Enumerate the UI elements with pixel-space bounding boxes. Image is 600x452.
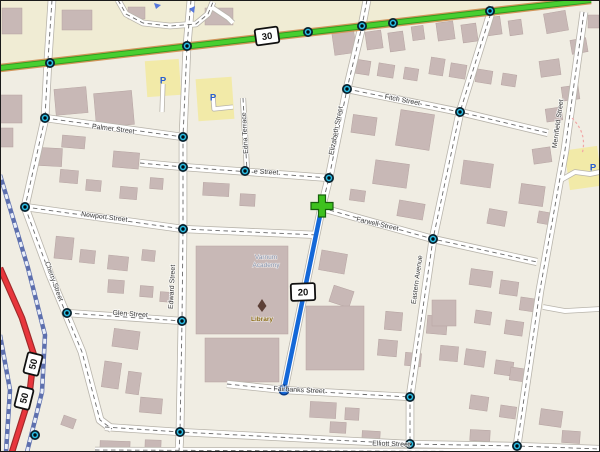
building — [62, 10, 92, 30]
route-node-marker[interactable] — [357, 21, 367, 31]
building — [86, 179, 102, 191]
building — [395, 110, 434, 151]
building — [349, 189, 365, 202]
route-node-marker[interactable] — [40, 113, 50, 123]
building — [539, 59, 561, 78]
map-canvas[interactable]: Palmer Streete StreetEdna TerraceFitch S… — [0, 0, 600, 452]
academy-label: Varnum — [255, 254, 277, 261]
route-node-marker[interactable] — [175, 427, 185, 437]
route-node-marker[interactable] — [405, 392, 415, 402]
building — [377, 63, 395, 78]
building — [54, 87, 88, 116]
building — [532, 147, 552, 164]
building — [474, 310, 492, 325]
building — [377, 339, 397, 357]
building — [519, 183, 546, 206]
building — [469, 269, 493, 288]
building — [318, 250, 347, 274]
route-node-marker[interactable] — [62, 308, 72, 318]
building — [54, 236, 74, 260]
building — [429, 57, 445, 76]
building — [464, 349, 486, 368]
building — [306, 306, 364, 370]
academy-label: Academy — [252, 262, 280, 269]
building — [140, 286, 154, 298]
svg-text:20: 20 — [298, 287, 309, 298]
building — [205, 338, 279, 382]
svg-text:30: 30 — [261, 31, 273, 43]
route-node-marker[interactable] — [303, 27, 313, 37]
map-viewport[interactable]: Palmer Streete StreetEdna TerraceFitch S… — [0, 0, 600, 452]
route-node-marker[interactable] — [485, 6, 495, 16]
building — [240, 194, 256, 207]
route-node-marker[interactable] — [455, 107, 465, 117]
building — [126, 371, 142, 395]
building — [470, 429, 491, 441]
route-node-marker[interactable] — [324, 173, 334, 183]
building — [141, 249, 155, 261]
parking-icon: P — [590, 163, 597, 174]
building — [436, 21, 455, 41]
parking-icon: P — [210, 93, 217, 104]
building — [475, 69, 493, 84]
building — [108, 279, 125, 293]
building — [461, 23, 478, 43]
library-label: Library — [251, 316, 273, 323]
building — [539, 409, 563, 428]
route-node-marker[interactable] — [178, 162, 188, 172]
building — [107, 255, 128, 271]
building — [0, 128, 13, 147]
building — [504, 320, 524, 336]
building — [79, 249, 95, 263]
building — [432, 300, 456, 326]
building — [588, 15, 599, 28]
building — [330, 422, 347, 434]
building — [543, 10, 568, 34]
building — [59, 169, 78, 184]
building — [203, 182, 230, 196]
building — [449, 63, 467, 79]
route-node-marker[interactable] — [428, 234, 438, 244]
building — [150, 178, 164, 190]
building — [120, 186, 138, 199]
route-node-marker[interactable] — [178, 224, 188, 234]
route-node-marker[interactable] — [177, 316, 187, 326]
route-shield-20: 20 — [291, 283, 316, 301]
building — [388, 31, 405, 52]
route-node-marker[interactable] — [178, 132, 188, 142]
route-node-marker[interactable] — [45, 58, 55, 68]
route-node-marker[interactable] — [512, 441, 522, 451]
building — [469, 395, 489, 411]
route-node-marker[interactable] — [240, 166, 250, 176]
route-node-marker[interactable] — [20, 202, 30, 212]
building — [460, 160, 493, 188]
street-name-label: Elliott Street — [372, 440, 410, 448]
route-node-marker[interactable] — [388, 18, 398, 28]
street-name-label: e Street — [254, 168, 279, 176]
building — [499, 280, 519, 296]
building — [487, 209, 507, 227]
building — [112, 151, 139, 169]
building — [62, 135, 86, 149]
building — [508, 19, 523, 36]
building — [2, 8, 22, 34]
building — [411, 25, 425, 41]
building — [403, 67, 419, 81]
route-node-marker[interactable] — [342, 84, 352, 94]
building — [501, 73, 517, 87]
parking-icon: P — [160, 76, 167, 87]
building — [365, 30, 383, 50]
building — [439, 345, 458, 362]
route-node-marker[interactable] — [30, 430, 40, 440]
route-node-marker[interactable] — [182, 41, 192, 51]
building — [310, 401, 337, 418]
building — [101, 361, 121, 389]
building — [0, 95, 22, 123]
route-shield-30: 30 — [254, 26, 279, 45]
building — [372, 160, 409, 188]
building — [499, 405, 517, 419]
building — [112, 328, 140, 349]
building — [139, 397, 162, 414]
building — [562, 430, 581, 443]
building — [351, 114, 377, 135]
building — [345, 408, 360, 421]
building — [384, 311, 403, 330]
